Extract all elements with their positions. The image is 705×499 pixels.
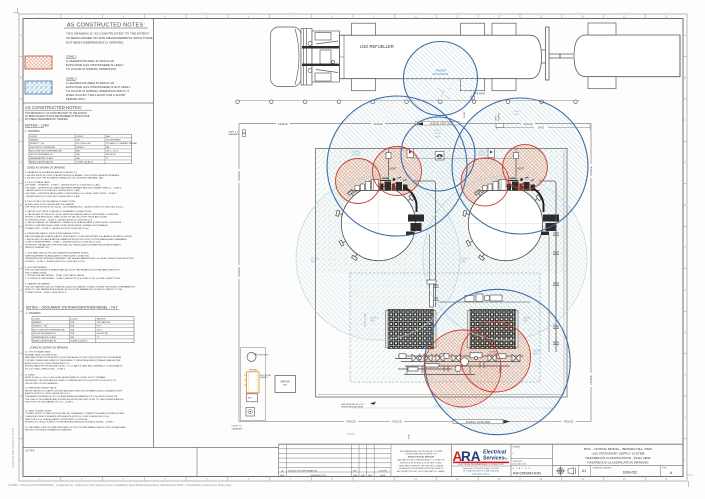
svg-text:14. THE SMALL SIZE OF SOME FEA: 14. THE SMALL SIZE OF SOME FEATURES OF T…: [25, 426, 126, 429]
svg-text:(3M): (3M): [461, 262, 466, 264]
svg-text:TABLE ZA.3.2.5-f, IN ADEQUATEL: TABLE ZA.3.2.5-f, IN ADEQUATELY VENTILAT…: [25, 418, 88, 421]
svg-text:N/A: N/A: [71, 336, 75, 339]
svg-text:GROUP DESIGNATION: GROUP DESIGNATION: [30, 153, 53, 156]
svg-text:10. THT STORAGE TANK:: 10. THT STORAGE TANK:: [25, 351, 51, 354]
svg-text:CAMERA 4: CAMERA 4: [228, 133, 240, 136]
svg-text:AS/NZS 60079.10.1:2009 CLAUSE: AS/NZS 60079.10.1:2009 CLAUSE ZA.3.2.6-f…: [25, 392, 71, 395]
svg-text:b. AS 3961:2005 THE STORAGE &: b. AS 3961:2005 THE STORAGE & HANDLING O…: [25, 177, 104, 180]
svg-text:THE LNG VAPORISER IS SEALED AN: THE LNG VAPORISER IS SEALED AND AS SUCH …: [25, 269, 120, 272]
svg-text:CONE TO ATMOSPHERE – ZONE 1 –: CONE TO ATMOSPHERE – ZONE 1 – AS/NZS 600…: [25, 241, 101, 244]
svg-text:Factory 18, 1-3 Exell St, Kils: Factory 18, 1-3 Exell St, Kilsyth - Vic …: [463, 467, 498, 470]
svg-text:REV: REV: [663, 468, 668, 470]
svg-text:WITHIN SPACE FROM GROUND LEVEL: WITHIN SPACE FROM GROUND LEVEL, TO 1m AB…: [25, 365, 123, 368]
svg-text:LIGHT 7 &: LIGHT 7 &: [232, 426, 243, 428]
svg-text:H: H: [20, 331, 22, 334]
svg-text:VAPOUR: VAPOUR: [97, 317, 106, 320]
svg-text:R1500: R1500: [513, 114, 520, 116]
svg-text:1. WITHIN THE VAPORISER – ZONE: 1. WITHIN THE VAPORISER – ZONE 1 (NOT AP…: [25, 274, 84, 277]
svg-text:ANY PERMITTED USE, DISCLOSED M: ANY PERMITTED USE, DISCLOSED MAY NOT LIA…: [397, 470, 446, 473]
svg-text:DATE: DATE: [380, 474, 386, 477]
svg-text:AUTO-IGNITION TEMPERATURE: AUTO-IGNITION TEMPERATURE: [33, 328, 65, 331]
svg-text:3. LNG STORAGE TANK:: 3. LNG STORAGE TANK:: [25, 181, 50, 184]
svg-text:N/A: N/A: [76, 150, 80, 153]
svg-text:(4M): (4M): [533, 354, 538, 356]
svg-text:OFF-VEHICLE SOURCE OF LIQUID –: OFF-VEHICLE SOURCE OF LIQUID – NON HAZAR…: [25, 206, 124, 209]
svg-text:FENCE: FENCE: [237, 267, 241, 277]
svg-text:HAZARDOUS CLASSIFICATION DRAWI: HAZARDOUS CLASSIFICATION DRAWING: [587, 461, 649, 465]
svg-text:THE AREA CONTAINED BY A CYLIND: THE AREA CONTAINED BY A CYLINDER HAVING …: [25, 395, 118, 398]
svg-text:THE CONNECTIONS:: THE CONNECTIONS:: [25, 272, 47, 274]
svg-text:THEREOF ARE THE PROPERTY OF: THEREOF ARE THE PROPERTY OF: [405, 453, 437, 456]
svg-text:ISSUED FOR INFORMATION: ISSUED FOR INFORMATION: [288, 470, 318, 473]
svg-text:AIR C: AIR C: [248, 397, 253, 400]
svg-text:N/A: N/A: [76, 153, 80, 156]
svg-text:1. HAZARDS: 1. HAZARDS: [26, 312, 41, 315]
svg-text:(4M): (4M): [523, 321, 528, 323]
svg-text:TEMPERATURE CLASS: TEMPERATURE CLASS: [30, 157, 54, 160]
svg-text:a. VALVES AND FITTINGS IN LIQ: a. VALVES AND FITTINGS IN LIQUID SERVICE…: [25, 213, 119, 216]
svg-text:K:\6393 - 1\Projects\Gn\2\6393: K:\6393 - 1\Projects\Gn\2\6393\6393 - Cr…: [8, 483, 232, 487]
svg-text:CONNECTIONS TO TANK INCLUDE VA: CONNECTIONS TO TANK INCLUDE VALVES, THRE…: [25, 412, 125, 415]
svg-text:PERIOD ONLY.: PERIOD ONLY.: [66, 97, 86, 101]
svg-text:PUMP: PUMP: [464, 111, 466, 118]
svg-text:GROUP IIA: GROUP IIA: [106, 153, 116, 156]
svg-text:NOTES – LNG: NOTES – LNG: [25, 124, 49, 128]
svg-text:SAFE EQUIPMENT IN ADEQUATELY V: SAFE EQUIPMENT IN ADEQUATELY VENTILATED …: [25, 254, 89, 257]
svg-text:TANKER: TANKER: [435, 69, 446, 73]
svg-text:OF BEING BASED ON SITE MEASURE: OF BEING BASED ON SITE MEASUREMENTS WHIC…: [25, 115, 90, 118]
svg-text:FENCE: FENCE: [589, 375, 593, 385]
svg-text:4800: 4800: [409, 433, 411, 439]
svg-text:N/A: N/A: [71, 328, 75, 331]
svg-text:LIQUID: LIQUID: [30, 136, 37, 138]
svg-text:DENSITY – SG: DENSITY – SG: [33, 326, 48, 328]
svg-text:(3M): (3M): [311, 262, 316, 264]
svg-text:GROUP IIA: GROUP IIA: [97, 332, 108, 335]
svg-text:PIT: PIT: [283, 385, 287, 387]
svg-text:DRAWN: DRAWN: [513, 446, 521, 449]
svg-text:FENCE: FENCE: [346, 420, 356, 424]
svg-text:CHECKED: CHECKED: [513, 461, 523, 463]
svg-text:SHOWN ON THE ACCOMPANYING DRAW: SHOWN ON THE ACCOMPANYING DRAWING.: [25, 429, 73, 432]
svg-text:C: C: [684, 119, 686, 122]
svg-text:TO GROUND LEVEL – ZONE 2 – AS/: TO GROUND LEVEL – ZONE 2 – AS/NZS 60079.…: [25, 218, 93, 221]
svg-text:LIQUID: LIQUID: [33, 318, 40, 320]
svg-text:GAS PIPELINE WILL GO: GAS PIPELINE WILL GO: [341, 403, 364, 406]
svg-text:NORMAL TANK VOLUME IS 30L.: NORMAL TANK VOLUME IS 30L.: [25, 353, 58, 356]
svg-text:ZONE 2: ZONE 2: [513, 111, 522, 113]
svg-text:LNG REFUELLER: LNG REFUELLER: [360, 44, 394, 49]
svg-text:FENCE: FENCE: [589, 166, 593, 176]
svg-text:THE LINE OF DISCHARGE AND EXTE: THE LINE OF DISCHARGE AND EXTENDING FROM…: [25, 398, 124, 401]
svg-text:200°C: 200°C: [97, 329, 103, 331]
svg-text:LNG SUPPLY PRESSURE: LNG SUPPLY PRESSURE: [30, 147, 55, 149]
svg-text:R1500: R1500: [434, 133, 441, 135]
svg-text:2. HAZARDOUS DISTANCES ARE AC: 2. HAZARDOUS DISTANCES ARE ACCORDING TO:: [25, 171, 78, 174]
svg-text:CAMERA 7: CAMERA 7: [232, 427, 244, 430]
svg-text:ZONE 2: ZONE 2: [438, 302, 447, 304]
svg-text:LNG TANK – INTERSTITIAL SPACE: LNG TANK – INTERSTITIAL SPACE BETWEEN PR…: [25, 186, 122, 189]
svg-text:DISCHARGE: DISCHARGE: [433, 72, 449, 76]
svg-text:UNDERGROUND HERE: UNDERGROUND HERE: [341, 406, 364, 408]
svg-text:BUND IS 0.8m x 1.0m x 0.35m HI: BUND IS 0.8m x 1.0m x 0.35m HIGH. AS REL…: [25, 376, 106, 379]
svg-text:AS CONSTRUCTED NOTES:: AS CONSTRUCTED NOTES:: [67, 23, 146, 29]
svg-text:THIS DRAWING IS “AS CONSTRUCTE: THIS DRAWING IS “AS CONSTRUCTED” TO THE …: [66, 32, 149, 36]
svg-text:G: G: [20, 289, 22, 292]
svg-text:OF ARA ELECTRICAL SERVICES IN: OF ARA ELECTRICAL SERVICES IN THE CASE O…: [399, 467, 444, 470]
svg-text:6393-052: 6393-052: [623, 470, 637, 474]
svg-text:VENT: VENT: [496, 115, 498, 121]
svg-text:N/A: N/A: [71, 321, 75, 324]
svg-text:MS: MS: [353, 471, 357, 473]
svg-text:OPERATING PROCEDURES ENSURING: OPERATING PROCEDURES ENSURING THE SEALED…: [25, 257, 134, 260]
svg-text:LIGHT 4 &: LIGHT 4 &: [228, 131, 239, 133]
svg-text:LNG (METHANE): LNG (METHANE): [106, 138, 121, 141]
svg-text:H: H: [684, 331, 686, 334]
svg-text:VENT: VENT: [517, 167, 524, 171]
svg-text:D: D: [684, 162, 686, 165]
svg-text:9. TANKER DISCHARGE:: 9. TANKER DISCHARGE:: [25, 283, 51, 286]
svg-text:CABINET: CABINET: [260, 376, 269, 379]
svg-text:(4M): (4M): [370, 321, 375, 323]
svg-text:LIQUID: LIQUID: [71, 318, 78, 320]
svg-text:FENCE: FENCE: [392, 420, 402, 424]
svg-text:T1: T1: [106, 158, 108, 160]
svg-text:FENCE: FENCE: [237, 171, 241, 181]
svg-text:7. LNG TANK TRUCKS FILLING (T: 7. LNG TANK TRUCKS FILLING (TANKER DISCH…: [25, 252, 89, 255]
svg-text:THT VAPOUR: THT VAPOUR: [97, 321, 111, 324]
svg-text:D: D: [20, 162, 22, 165]
svg-text:8. LNG VAPORISERS:: 8. LNG VAPORISERS:: [25, 266, 48, 269]
svg-text:0.55 (AIR=1) TO HEAVIER THAN A: 0.55 (AIR=1) TO HEAVIER THAN AIR: [106, 142, 138, 145]
svg-text:N/A: N/A: [71, 332, 75, 335]
svg-text:As per ArcTrend: As per ArcTrend: [513, 463, 527, 466]
svg-text:1. HAZARDS: 1. HAZARDS: [25, 130, 40, 133]
svg-text:11. BUND:: 11. BUND:: [25, 374, 36, 376]
svg-text:GAS DISCHARGED IN ADEQUATELY V: GAS DISCHARGED IN ADEQUATELY VENTILATED …: [25, 235, 132, 238]
svg-text:CLASSIFIED IN ACCORDANCE WITH: CLASSIFIED IN ACCORDANCE WITH AS/NZS 600…: [25, 415, 110, 418]
svg-text:ZONE 2 (4M): ZONE 2 (4M): [365, 313, 367, 327]
svg-text:THIS DRAWING IS “AS CONSTRUCTE: THIS DRAWING IS “AS CONSTRUCTED” TO THE …: [25, 112, 87, 115]
svg-text:GROUP DESIGNATION: GROUP DESIGNATION: [33, 332, 56, 335]
svg-text:HOSES USED FOR LOADING AND DIS: HOSES USED FOR LOADING AND DISCHARGE: [25, 203, 74, 206]
svg-text:CONNECTIONS – ZONE 2 (SEE NOTE: CONNECTIONS – ZONE 2 (SEE NOTE 5): [25, 292, 67, 294]
svg-text:DRN: DRN: [353, 475, 358, 477]
svg-text:ZONE 1: ZONE 1: [311, 259, 320, 261]
svg-text:THE POINT OF DISCHARGE OF 1.5m: THE POINT OF DISCHARGE OF 1.5m – ZONE 1: [25, 401, 74, 404]
svg-text:HAZARD: HAZARD: [30, 138, 39, 141]
svg-text:(R1500): (R1500): [352, 155, 361, 157]
svg-text:OF BEING BASED ON SITE MEASURE: OF BEING BASED ON SITE MEASUREMENTS WHIC…: [66, 36, 153, 40]
svg-text:ZONE 2: ZONE 2: [370, 318, 379, 320]
svg-text:FIXED TO THE TANKER AT A FLANG: FIXED TO THE TANKER AT A FLANGE, AS SUCH…: [25, 288, 123, 291]
svg-text:ZONE 1: ZONE 1: [352, 152, 361, 154]
svg-text:(R1500): (R1500): [478, 155, 487, 157]
svg-text:4. LNG FILLING OR DISCHARGE C: 4. LNG FILLING OR DISCHARGE CONNECTIONS:: [25, 200, 76, 203]
svg-text:CHK: CHK: [361, 475, 366, 477]
svg-text:FENCE: FENCE: [373, 122, 383, 126]
svg-text:1000kPa: 1000kPa: [76, 147, 85, 149]
svg-text:GATE: GATE: [435, 135, 441, 138]
svg-text:INFORMATION: INFORMATION: [513, 471, 541, 476]
svg-text:SOURCE – ZONE 1 – AS/NZS 60079: SOURCE – ZONE 1 – AS/NZS 60079.10.1:2009…: [25, 260, 85, 263]
svg-text:ZONE 2: ZONE 2: [434, 130, 443, 132]
svg-text:THIRD PARTY WITHOUT THE WRITTE: THIRD PARTY WITHOUT THE WRITTEN CONSENT: [399, 464, 445, 467]
svg-text:FENCE: FENCE: [278, 122, 288, 126]
svg-text:APP: APP: [368, 474, 373, 477]
svg-text:S T A T U S: S T A T U S: [513, 467, 531, 470]
svg-text:17/07/18: 17/07/18: [378, 471, 387, 473]
svg-text:NOT BEEN INDEPENDENTLY VERIFIE: NOT BEEN INDEPENDENTLY VERIFIED.: [25, 119, 69, 121]
svg-text:THE LNG TANKER DOES NOT HAVE A: THE LNG TANKER DOES NOT HAVE A LIQUID DI…: [25, 285, 136, 288]
svg-text:NOTES: NOTES: [26, 449, 35, 453]
svg-text:ZONES AS SHOWN ON DRAWING: ZONES AS SHOWN ON DRAWING: [27, 167, 65, 170]
svg-text:b. VALVE, FLANGE OR THREADED: b. VALVE, FLANGE OR THREADED CONNECTION,…: [25, 221, 122, 224]
svg-text:SYSTEM, THEREFORE TANK IS CONS: SYSTEM, THEREFORE TANK IS CONSIDERED TO …: [25, 359, 121, 362]
svg-text:REPRODUCED IN WHOLE OR IN PART: REPRODUCED IN WHOLE OR IN PART TO ANY: [400, 461, 443, 464]
svg-text:SUPPLY: SUPPLY: [499, 112, 501, 121]
svg-text:C: C: [20, 119, 22, 122]
svg-text:2. OUTSIDE OF VAPORISER – ZONE: 2. OUTSIDE OF VAPORISER – ZONE 2 (SEE NO…: [25, 277, 120, 280]
svg-text:540°C – 610°C: 540°C – 610°C: [106, 151, 119, 153]
svg-text:NOT BEEN INDEPENDENTLY VERIFIE: NOT BEEN INDEPENDENTLY VERIFIED.: [66, 40, 124, 44]
svg-text:ZONES 1&2 AS /5: ZONES 1&2 AS /5: [71, 340, 89, 343]
svg-text:ZONE 2: ZONE 2: [347, 434, 356, 436]
svg-text:1 METRE BEYOND AND A METRE DIA: 1 METRE BEYOND AND A METRE DIAMETER FROM…: [25, 238, 127, 241]
svg-text:AND MAY NOT BE COMMUNICATED TO: AND MAY NOT BE COMMUNICATED TO, COPIED O…: [398, 459, 445, 462]
svg-text:VALVE IS VERIFIED ETC.: VALVE IS VERIFIED ETC.: [25, 246, 51, 249]
svg-text:Ph + (03) 9721 3377, Fax: (03): Ph + (03) 9721 3377, Fax: (03) 9720 3733: [463, 471, 498, 473]
svg-text:WITHIN 1.5 METRES IN ALL DIREC: WITHIN 1.5 METRES IN ALL DIRECTIONS OF V…: [25, 216, 107, 219]
svg-text:G: G: [684, 289, 686, 292]
svg-text:ZONE 1: ZONE 1: [461, 259, 470, 261]
svg-text:N/A: N/A: [76, 157, 80, 160]
svg-text:LNG: LNG: [76, 139, 81, 141]
svg-text:DENSITY – SG: DENSITY – SG: [30, 143, 45, 145]
svg-text:AREA CLASSIFICATION: AREA CLASSIFICATION: [30, 161, 54, 164]
svg-text:AIR RECEIVER: AIR RECEIVER: [255, 353, 269, 356]
svg-text:LIQUID: LIQUID: [76, 136, 83, 138]
svg-text:LNG NOTES ON THE DRAWING.: LNG NOTES ON THE DRAWING.: [25, 382, 59, 385]
svg-text:AS/NZS 60079.10.1:2009 CLAUSE: AS/NZS 60079.10.1:2009 CLAUSE ZA.3.2.1-f…: [25, 362, 71, 365]
svg-text:12. PRESSURE RELIEF VALVE:: 12. PRESSURE RELIEF VALVE:: [25, 387, 57, 390]
svg-text:CONNECTION – ZONE 2 – AS/NZS 6: CONNECTION – ZONE 2 – AS/NZS 60079.10.1:…: [25, 227, 89, 230]
svg-text:DESCRIPTION: DESCRIPTION: [311, 475, 326, 477]
svg-text:www.araelec.com.au: www.araelec.com.au: [472, 472, 489, 475]
svg-text:6. PRESSURE SAFETY DEVICE DIS: 6. PRESSURE SAFETY DEVICE DISCHARGE POIN…: [25, 232, 81, 235]
svg-text:SLIDING GATE 3000: SLIDING GATE 3000: [430, 122, 453, 125]
svg-text:Lindy THU 19/07/2018 4:21:55: Lindy THU 19/07/2018 4:21:55 PM: [11, 428, 15, 468]
svg-text:BOC – CRISTAL MINING – BROKEN: BOC – CRISTAL MINING – BROKEN HILL, NSW: [584, 447, 652, 451]
svg-text:ZONE 1: ZONE 1: [478, 152, 487, 154]
svg-text:FENCE: FENCE: [523, 122, 533, 126]
svg-text:A1: A1: [582, 469, 586, 473]
svg-text:WITHIN 1.5 METRES IN ALL DIREC: WITHIN 1.5 METRES IN ALL DIRECTIONS FROM…: [25, 224, 109, 227]
svg-text:ZONES AS SHOWN ON DRAWING: ZONES AS SHOWN ON DRAWING: [30, 346, 68, 349]
svg-text:FENCE: FENCE: [564, 420, 574, 424]
svg-text:ZONES 1&2 AS /1: ZONES 1&2 AS /1: [76, 161, 94, 164]
svg-text:HAZARD: HAZARD: [33, 321, 42, 324]
svg-text:5. VALVES & FITTINGS, FLANGES: 5. VALVES & FITTINGS, FLANGES & THREADED…: [25, 210, 92, 213]
svg-text:a. AS/NZS 60079.10.1:2009 CLA: a. AS/NZS 60079.10.1:2009 CLASSIFICATION…: [25, 174, 120, 177]
svg-text:LNG STATIONARY SUPPLY SYSTEM: LNG STATIONARY SUPPLY SYSTEM: [592, 452, 645, 456]
svg-text:3430: 3430: [538, 126, 545, 130]
svg-text:HAZARDOUS CLASSIFICATION - PLA: HAZARDOUS CLASSIFICATION - PLAN VIEW: [585, 456, 650, 460]
svg-text:ZONE 2: ZONE 2: [523, 318, 532, 320]
svg-text:FILL PT: FILL PT: [489, 354, 497, 356]
svg-text:HOWEVER, THE ABOVE IS PROVISIO: HOWEVER, THE ABOVE IS PROVISIONAL, AS TH…: [25, 243, 122, 246]
svg-text:13. TANK CONNECTIONS:: 13. TANK CONNECTIONS:: [25, 409, 52, 412]
svg-text:SG 0.425-0.485: SG 0.425-0.485: [76, 143, 92, 145]
svg-text:UNDER ANY CIRCUMSTANCES, BUND: UNDER ANY CIRCUMSTANCES, BUND IS TREATED…: [25, 379, 117, 382]
svg-text:Services: Services: [483, 456, 504, 462]
svg-text:DRAWING NUMBER: DRAWING NUMBER: [593, 467, 612, 470]
svg-text:VENT: VENT: [390, 167, 397, 171]
svg-text:VAPOUR: VAPOUR: [280, 381, 290, 384]
svg-text:TO OCCUR IN NORMAL OPERATION.: TO OCCUR IN NORMAL OPERATION.: [66, 67, 117, 71]
svg-text:ARA ELECTRICAL SERVICES: ARA ELECTRICAL SERVICES: [408, 456, 435, 459]
svg-text:TEMPERATURE CLASS: TEMPERATURE CLASS: [33, 336, 57, 339]
svg-text:ZONE 2: ZONE 2: [533, 351, 542, 353]
svg-text:LNG TANK – EXTERIOR (ADEQUATEL: LNG TANK – EXTERIOR (ADEQUATELY VENTILAT…: [25, 192, 117, 195]
svg-text:– AS/NZS 60079.10.1:2009 ZA.5: – AS/NZS 60079.10.1:2009 ZA.5 CLAUSE ZA.…: [25, 189, 80, 192]
svg-text:N/A: N/A: [71, 325, 75, 328]
svg-text:OF 1.5m IN ALL DIRECTIONS – ZO: OF 1.5m IN ALL DIRECTIONS – ZONE 2: [25, 367, 66, 370]
svg-text:TANK AND PIPING SYSTEM FULLY/1: TANK AND PIPING SYSTEM FULLY/100% BECAUS…: [25, 356, 121, 359]
svg-text:AREA CLASSIFICATION: AREA CLASSIFICATION: [33, 340, 57, 343]
svg-text:AUTO-IGNITION TEMPERATURE: AUTO-IGNITION TEMPERATURE: [30, 150, 62, 153]
svg-text:RELIEF VALVE IS LOCATED ON THE: RELIEF VALVE IS LOCATED ON THE TANK AND …: [25, 389, 123, 392]
svg-text:NOTES – ODOURANT (TETRAHYDROTH: NOTES – ODOURANT (TETRAHYDROTHIOPHENE) –…: [26, 306, 117, 310]
svg-text:– AS/NZS 60079.10.1:2009 ZA.5: – AS/NZS 60079.10.1:2009 ZA.5 CLAUSE ZA.…: [25, 195, 80, 198]
svg-text:SLIDING GATE 3000: SLIDING GATE 3000: [466, 420, 491, 424]
svg-text:REV: REV: [280, 475, 285, 477]
svg-text:LNG TANK – INTERIOR – ZONE 0 –: LNG TANK – INTERIOR – ZONE 0 – AS/NZS 60…: [25, 184, 100, 187]
svg-text:WITHIN 0.5m OF ALL POINTS OF R: WITHIN 0.5m OF ALL POINTS OF RELEASE AND…: [25, 421, 115, 424]
svg-text:THE DRAWING AND THE TECHNICAL: THE DRAWING AND THE TECHNICAL CONTENT: [400, 450, 444, 453]
svg-text:AS CONSTRUCTED NOTES:: AS CONSTRUCTED NOTES:: [25, 105, 82, 110]
